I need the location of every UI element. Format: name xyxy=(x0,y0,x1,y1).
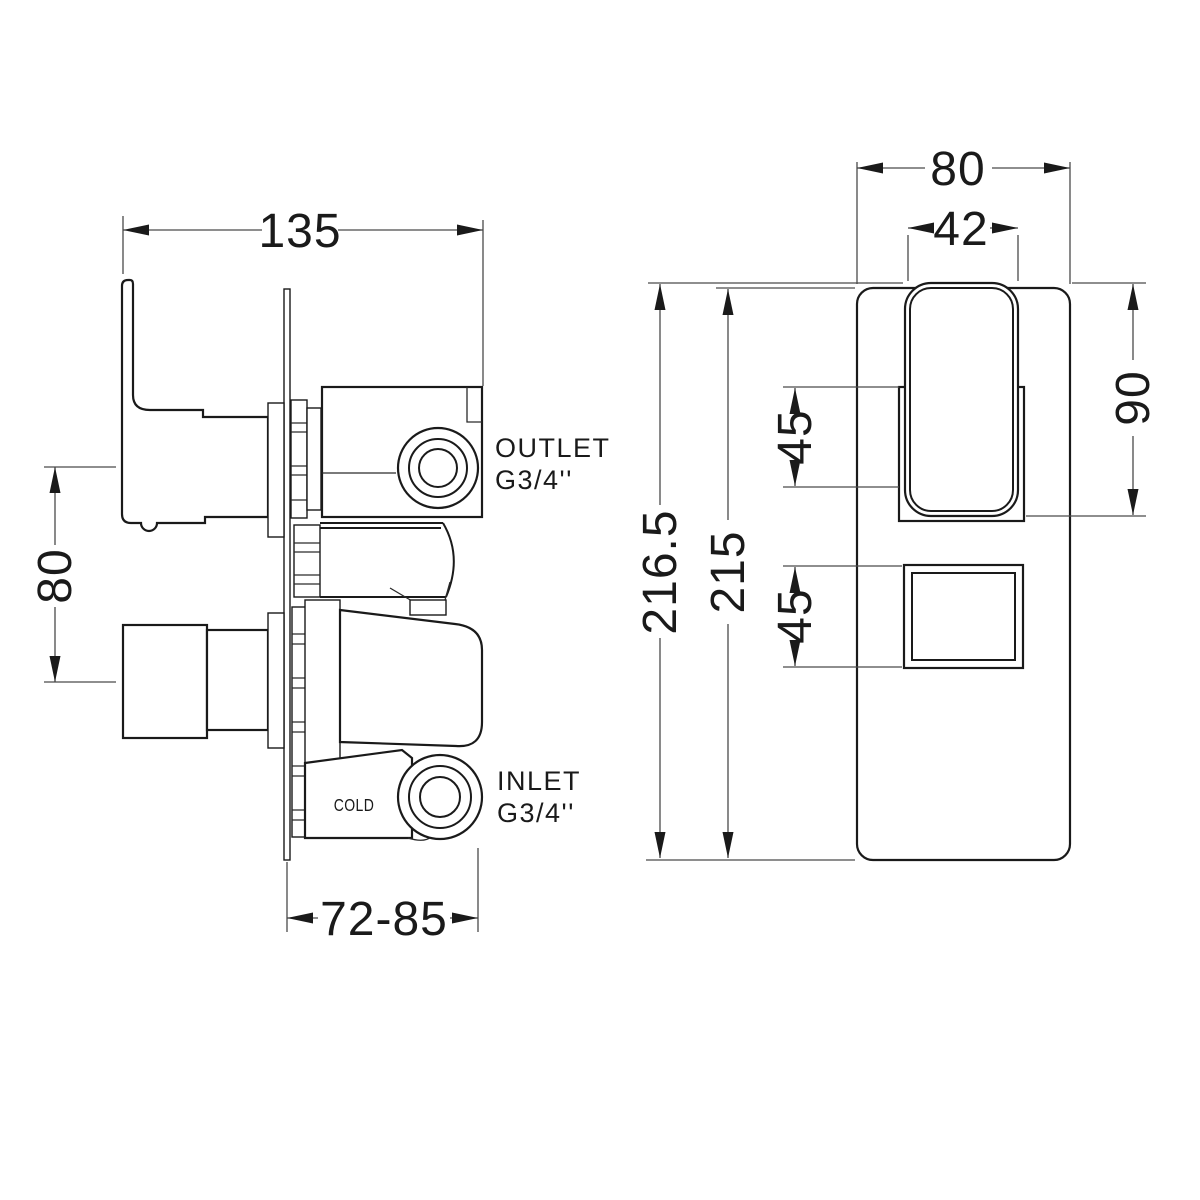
mid-rib-strip xyxy=(294,525,320,597)
cold-label: COLD xyxy=(334,795,375,815)
technical-drawing-page: COLD OUTLET G3/4'' INLET G3/4'' 135 80 xyxy=(0,0,1200,1200)
inlet-label: INLET xyxy=(497,766,581,796)
lever-handle-front xyxy=(905,283,1018,516)
knob-front xyxy=(904,565,1023,668)
dim-lever-height-text: 90 xyxy=(1107,370,1160,425)
dim-install-depth-text: 72-85 xyxy=(320,893,448,946)
inlet-thread-label: G3/4'' xyxy=(497,798,575,828)
dim-plate-height-text: 215 xyxy=(702,530,755,613)
dim-plate-height: 215 xyxy=(702,288,855,858)
lever-handle-side xyxy=(122,280,268,531)
knob-side xyxy=(123,625,268,738)
front-view: 80 42 216.5 215 45 xyxy=(634,143,1160,860)
port-labels: OUTLET G3/4'' INLET G3/4'' xyxy=(495,433,611,828)
outlet-thread-label: G3/4'' xyxy=(495,465,573,495)
dim-plate-width-text: 80 xyxy=(930,143,985,196)
upper-escutcheon xyxy=(268,403,284,537)
valve-dimension-drawing: COLD OUTLET G3/4'' INLET G3/4'' 135 80 xyxy=(0,0,1200,1200)
dim-overall-width-text: 135 xyxy=(258,205,341,258)
inlet-port xyxy=(398,755,482,839)
side-view: COLD OUTLET G3/4'' INLET G3/4'' 135 80 xyxy=(29,205,611,946)
dim-install-depth: 72-85 xyxy=(287,848,478,946)
dim-control-spacing: 80 xyxy=(29,467,116,682)
dim-overall-height-text: 216.5 xyxy=(634,509,687,634)
dim-lever-width-text: 42 xyxy=(933,203,988,256)
outlet-port xyxy=(398,428,478,508)
wall-plate-edge xyxy=(284,289,290,860)
dim-lever-width: 42 xyxy=(908,203,1018,281)
dim-knob-zone-text: 45 xyxy=(769,588,822,643)
lower-escutcheon xyxy=(268,613,284,748)
upper-rib-strip xyxy=(291,400,321,518)
dim-overall-width: 135 xyxy=(123,205,483,386)
outlet-label: OUTLET xyxy=(495,433,611,463)
dim-control-spacing-text: 80 xyxy=(29,548,82,603)
dim-lever-zone-text: 45 xyxy=(769,409,822,464)
